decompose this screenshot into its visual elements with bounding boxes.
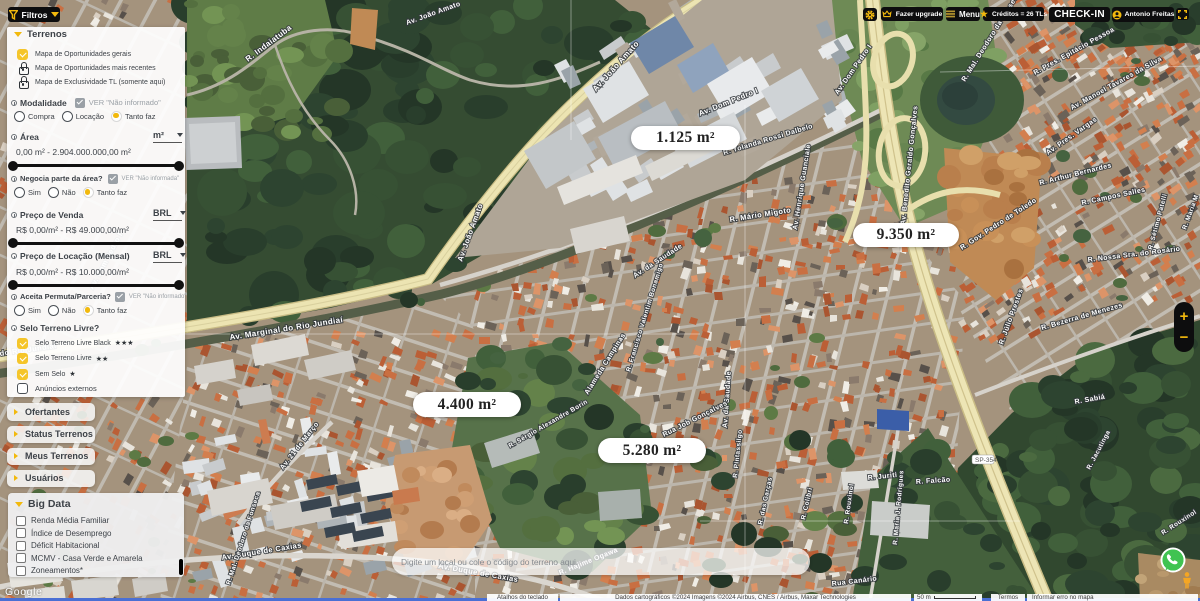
svg-text:SP-354: SP-354 [975,457,997,464]
